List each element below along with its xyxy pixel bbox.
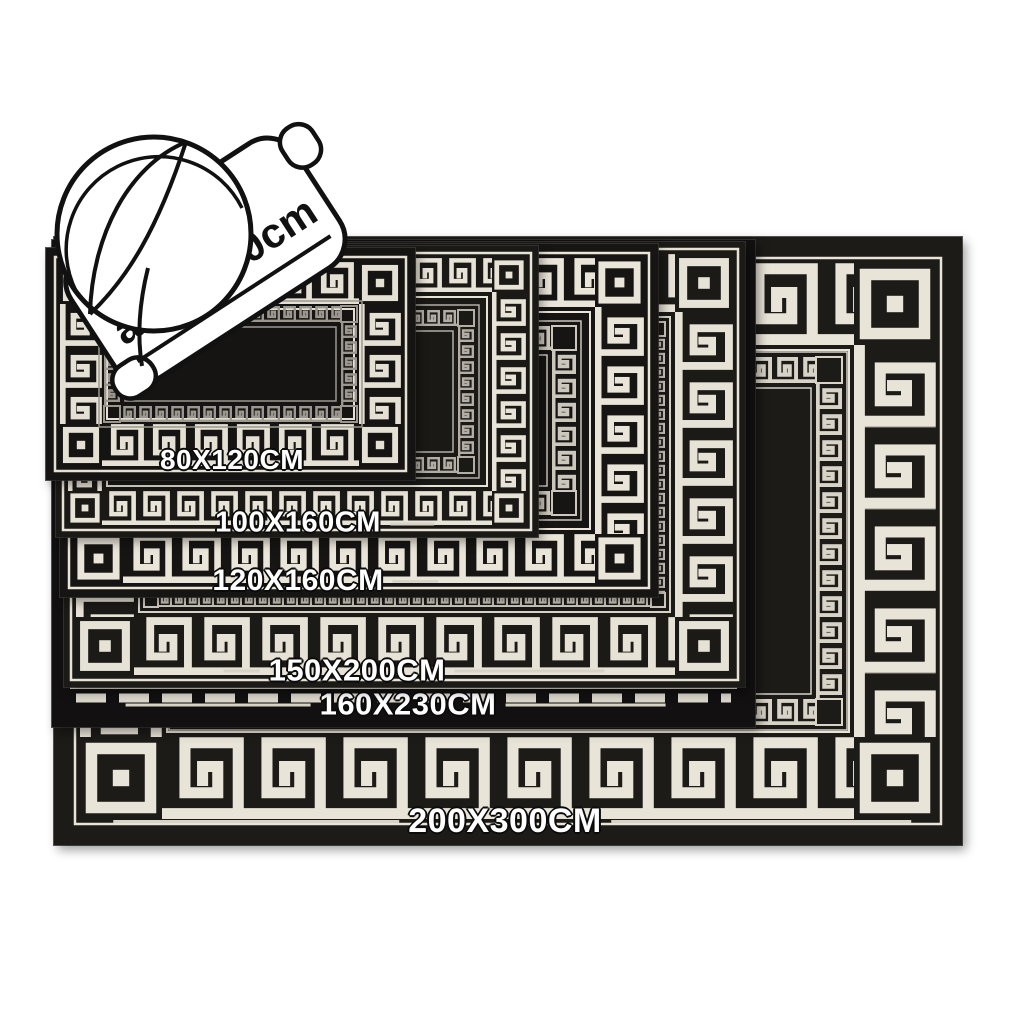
size-label-100x160: 100X160CM	[215, 509, 381, 538]
rug-size-comparison-diagram: 200X300CM 160X230CM 150X200CM 120X160CM …	[0, 0, 1024, 1024]
size-label-120x160: 120X160CM	[212, 566, 383, 596]
size-label-160x230: 160X230CM	[320, 689, 497, 720]
size-label-80x120: 80X120CM	[160, 446, 304, 474]
rolled-rug-icon: about 80cm	[36, 86, 348, 416]
size-label-150x200: 150X200CM	[269, 655, 446, 686]
size-label-200x300: 200X300CM	[408, 804, 602, 838]
